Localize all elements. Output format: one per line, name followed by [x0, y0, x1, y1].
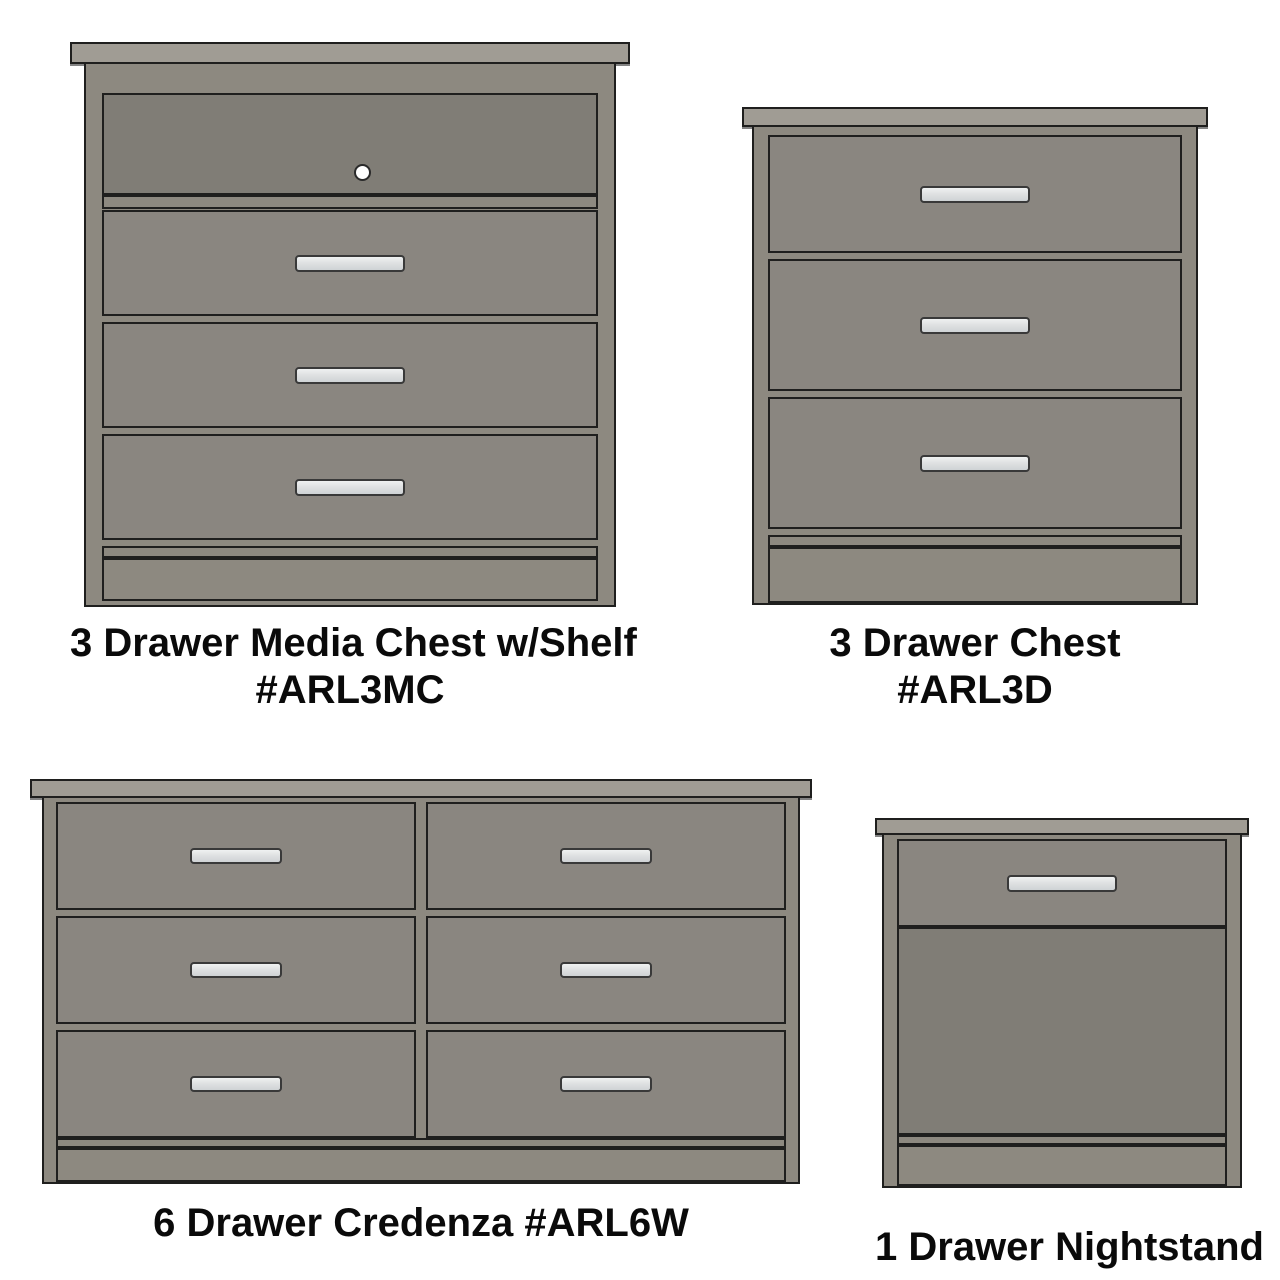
media-chest-figure: 3 Drawer Media Chest w/Shelf #ARL3MC	[70, 42, 630, 722]
credenza-bottom-rail	[56, 1138, 786, 1148]
media-chest-top-board	[70, 42, 630, 64]
drawer	[768, 259, 1182, 391]
chest-top-board	[742, 107, 1208, 127]
nightstand-figure: 1 Drawer Nightstand	[875, 818, 1249, 1268]
drawer-handle	[560, 848, 652, 864]
product-model: #ARL3MC	[70, 667, 630, 714]
drawer	[897, 839, 1227, 927]
drawer	[102, 434, 598, 540]
drawer	[768, 135, 1182, 253]
nightstand-open-compartment	[897, 927, 1227, 1135]
drawer	[102, 322, 598, 428]
drawer-handle	[920, 186, 1030, 203]
drawer-handle	[560, 962, 652, 978]
drawer-handle	[295, 367, 405, 384]
product-name: 3 Drawer Media Chest w/Shelf	[70, 620, 630, 667]
nightstand-bottom-rail	[897, 1135, 1227, 1145]
furniture-catalog-sheet: { "colors": { "background": "#ffffff", "…	[0, 0, 1280, 1280]
media-chest-base	[102, 558, 598, 601]
drawer-handle	[560, 1076, 652, 1092]
drawer	[56, 802, 416, 910]
drawer	[426, 916, 786, 1024]
drawer	[56, 916, 416, 1024]
drawer-handle	[190, 1076, 282, 1092]
drawer	[768, 397, 1182, 529]
product-label: 3 Drawer Chest #ARL3D	[742, 620, 1208, 714]
product-label: 3 Drawer Media Chest w/Shelf #ARL3MC	[70, 620, 630, 714]
drawer-handle	[1007, 875, 1117, 892]
drawer-handle	[295, 479, 405, 496]
product-name: 1 Drawer Nightstand	[875, 1224, 1249, 1271]
drawer	[426, 1030, 786, 1138]
drawer	[426, 802, 786, 910]
drawer-handle	[190, 848, 282, 864]
chest-carcass	[752, 125, 1198, 605]
credenza-base	[56, 1148, 786, 1182]
drawer	[56, 1030, 416, 1138]
drawer-handle	[190, 962, 282, 978]
credenza-figure: 6 Drawer Credenza #ARL6W	[30, 779, 812, 1249]
cable-hole	[354, 164, 371, 181]
product-name: 3 Drawer Chest	[742, 620, 1208, 667]
chest-bottom-rail	[768, 535, 1182, 547]
media-chest-shelf-opening	[102, 93, 598, 195]
nightstand-base	[897, 1145, 1227, 1186]
drawer-handle	[920, 455, 1030, 472]
credenza-carcass	[42, 796, 800, 1184]
chest-figure: 3 Drawer Chest #ARL3D	[742, 107, 1208, 727]
nightstand-carcass	[882, 833, 1242, 1188]
product-label: 6 Drawer Credenza #ARL6W	[30, 1200, 812, 1247]
drawer-handle	[920, 317, 1030, 334]
chest-base	[768, 547, 1182, 603]
media-chest-carcass	[84, 62, 616, 607]
drawer-handle	[295, 255, 405, 272]
product-model: #ARL3D	[742, 667, 1208, 714]
drawer	[102, 210, 598, 316]
media-chest-shelf-board	[102, 195, 598, 209]
product-name: 6 Drawer Credenza #ARL6W	[30, 1200, 812, 1247]
product-label: 1 Drawer Nightstand	[875, 1224, 1249, 1271]
media-chest-bottom-rail	[102, 546, 598, 558]
